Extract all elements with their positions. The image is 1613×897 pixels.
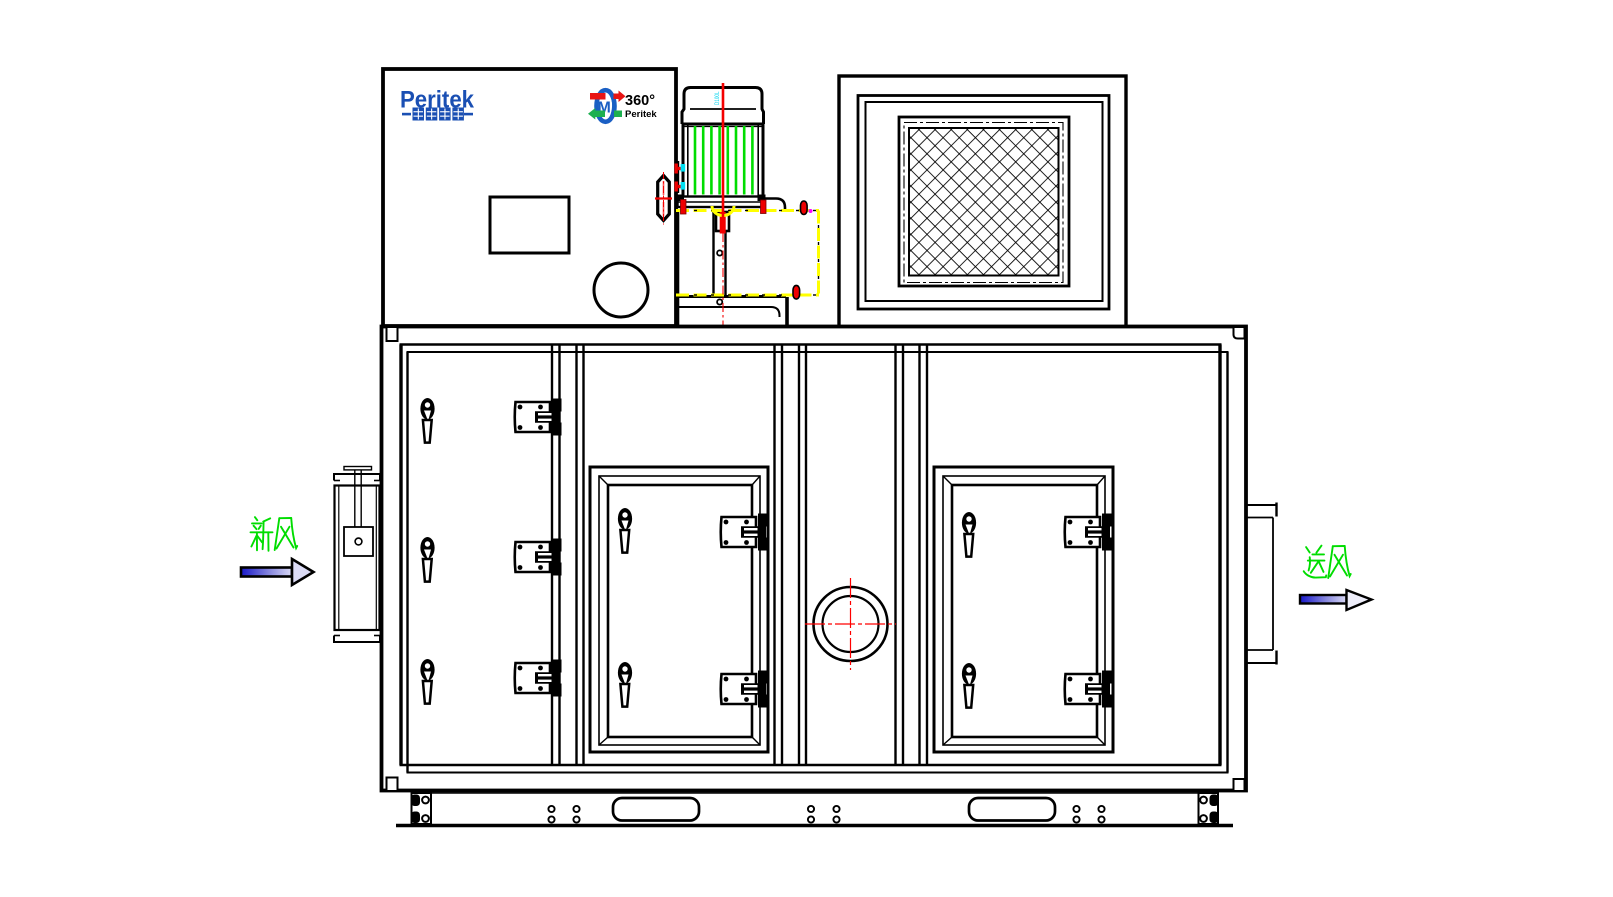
svg-text:D100L: D100L xyxy=(714,91,721,105)
svg-text:360°: 360° xyxy=(625,93,655,109)
svg-text:Peritek: Peritek xyxy=(625,109,657,120)
